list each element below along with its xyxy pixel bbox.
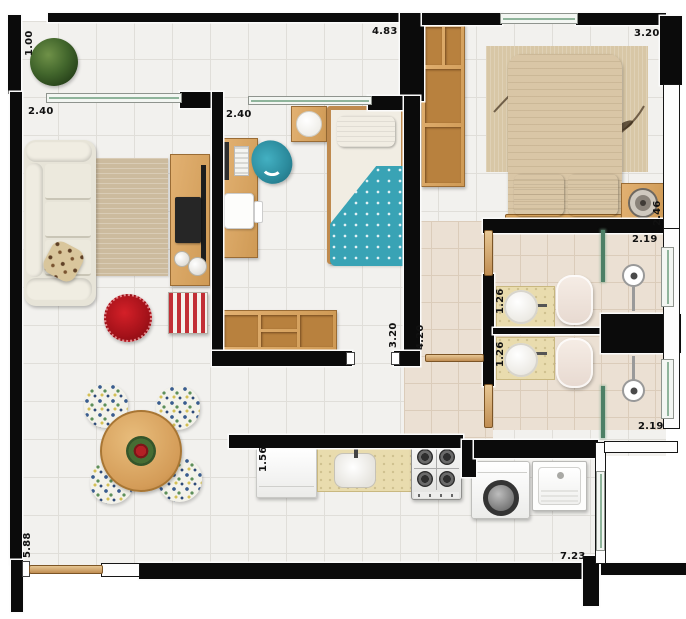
door-jamb bbox=[391, 352, 400, 365]
wall bbox=[10, 92, 22, 564]
dim-bottom-span: 7.23 bbox=[560, 551, 585, 562]
entry-door bbox=[29, 565, 103, 574]
suite-bath-door bbox=[484, 230, 493, 276]
red-pouf bbox=[104, 294, 152, 342]
wall-outlined bbox=[604, 441, 678, 453]
dim-hall-length: 4.20 bbox=[415, 325, 426, 350]
wall-outlined bbox=[663, 84, 680, 229]
toilet bbox=[556, 338, 593, 388]
dim-bedroom2-length: 3.20 bbox=[388, 323, 399, 348]
door-jamb bbox=[346, 352, 355, 365]
dim-kitchen-depth: 1.56 bbox=[258, 447, 269, 472]
fridge-divider bbox=[259, 486, 314, 487]
wall bbox=[368, 96, 406, 110]
bed-pillow bbox=[514, 174, 564, 216]
wall bbox=[474, 440, 598, 458]
kitchen-counter bbox=[317, 445, 414, 492]
wall bbox=[212, 351, 352, 366]
wall bbox=[422, 13, 502, 25]
wall bbox=[601, 563, 686, 575]
shower-arm bbox=[632, 356, 635, 380]
wardrobe-shelf bbox=[445, 27, 461, 65]
monitor bbox=[224, 193, 254, 229]
dim-master-width: 3.20 bbox=[634, 28, 659, 39]
dim-living-width: 2.40 bbox=[28, 106, 53, 117]
wardrobe-shelf bbox=[425, 27, 442, 65]
wall bbox=[493, 328, 602, 334]
table-lamp-finial bbox=[640, 200, 646, 206]
toilet bbox=[556, 275, 593, 325]
wardrobe-shelf bbox=[425, 69, 461, 123]
sofa bbox=[24, 140, 96, 306]
wall bbox=[576, 13, 666, 25]
laundry-tub bbox=[532, 461, 587, 511]
shelf-compartment bbox=[261, 315, 297, 329]
laundry-tub-drain bbox=[557, 472, 564, 479]
dim-top-span: 4.83 bbox=[372, 26, 397, 37]
wardrobe-shelf bbox=[425, 127, 461, 183]
shower-head bbox=[622, 264, 645, 287]
shower-arm bbox=[632, 287, 635, 311]
social-bath-door bbox=[484, 384, 493, 428]
laptop bbox=[223, 142, 229, 180]
sofa-armrest bbox=[26, 142, 92, 162]
single-bed-pillow bbox=[337, 116, 395, 147]
wall bbox=[139, 563, 598, 579]
desk-gadget bbox=[254, 201, 263, 223]
dim-master-depth: 2.46 bbox=[652, 201, 663, 226]
shower-glass bbox=[601, 386, 605, 438]
low-shelf bbox=[219, 310, 337, 352]
shelf-compartment bbox=[261, 332, 297, 347]
shower-glass bbox=[601, 230, 605, 282]
wall-outlined bbox=[101, 563, 140, 577]
flower-centerpiece bbox=[126, 436, 156, 466]
sofa-backrest bbox=[26, 163, 43, 277]
living-sliding-door bbox=[46, 93, 182, 103]
potted-plant bbox=[30, 38, 78, 86]
hallway-door-leaf bbox=[425, 354, 484, 362]
stove-burner bbox=[439, 471, 455, 487]
wall bbox=[48, 13, 402, 22]
washing-machine bbox=[471, 461, 530, 519]
wall bbox=[212, 92, 223, 355]
wall bbox=[8, 15, 21, 94]
dim-bedroom2-width: 2.40 bbox=[226, 109, 251, 120]
shelf-compartment bbox=[300, 315, 333, 347]
stove-burner bbox=[439, 449, 455, 465]
floor-plan-image: 1.00 2.40 2.40 4.83 3.20 2.46 2.19 1.26 … bbox=[0, 0, 686, 619]
dim-bath-suite-width: 2.19 bbox=[632, 234, 657, 245]
gas-stove bbox=[411, 443, 462, 500]
kitchen-sink bbox=[334, 453, 376, 488]
shower-head bbox=[622, 379, 645, 402]
office-chair-seam bbox=[261, 156, 284, 177]
side-table bbox=[291, 106, 327, 142]
soundbar bbox=[201, 165, 206, 265]
wardrobe bbox=[421, 23, 465, 187]
shelf-compartment bbox=[224, 315, 258, 347]
stove-burner bbox=[417, 449, 433, 465]
area-rug bbox=[96, 158, 168, 276]
exterior-area bbox=[606, 456, 686, 563]
sofa-cushion bbox=[45, 202, 91, 238]
stove-burner bbox=[417, 471, 433, 487]
wall bbox=[180, 92, 216, 108]
laundry-window bbox=[596, 471, 605, 551]
sofa-cushion bbox=[45, 164, 91, 200]
dim-balcony-depth: 1.00 bbox=[24, 31, 35, 56]
side-table-top bbox=[296, 111, 322, 137]
dim-bath-social-width: 2.19 bbox=[638, 421, 663, 432]
stove-grate bbox=[414, 468, 459, 469]
bedroom2-sliding-door bbox=[248, 96, 372, 105]
bathroom-window bbox=[661, 359, 674, 419]
dim-living-length: 5.88 bbox=[22, 533, 33, 558]
washer-door bbox=[483, 480, 519, 516]
striped-ottoman bbox=[168, 292, 208, 334]
washer-panel bbox=[474, 472, 527, 473]
laundry-tub-ribs bbox=[541, 490, 578, 504]
bed-pillow bbox=[568, 174, 618, 216]
tv-stand bbox=[170, 154, 210, 286]
master-window bbox=[500, 13, 578, 24]
wall bbox=[400, 13, 424, 101]
bathroom-window bbox=[661, 247, 674, 307]
keyboard bbox=[234, 146, 249, 176]
stove-knobs bbox=[414, 492, 459, 498]
washbasin bbox=[504, 290, 538, 324]
speaker bbox=[188, 257, 207, 276]
wall bbox=[404, 96, 420, 356]
tv bbox=[175, 197, 201, 243]
dim-bath-social-sink: 1.26 bbox=[495, 342, 506, 367]
wall bbox=[660, 16, 682, 85]
sofa-armrest bbox=[26, 278, 92, 300]
washbasin bbox=[504, 343, 538, 377]
dim-bath-suite-sink: 1.26 bbox=[495, 289, 506, 314]
wall bbox=[483, 219, 666, 233]
